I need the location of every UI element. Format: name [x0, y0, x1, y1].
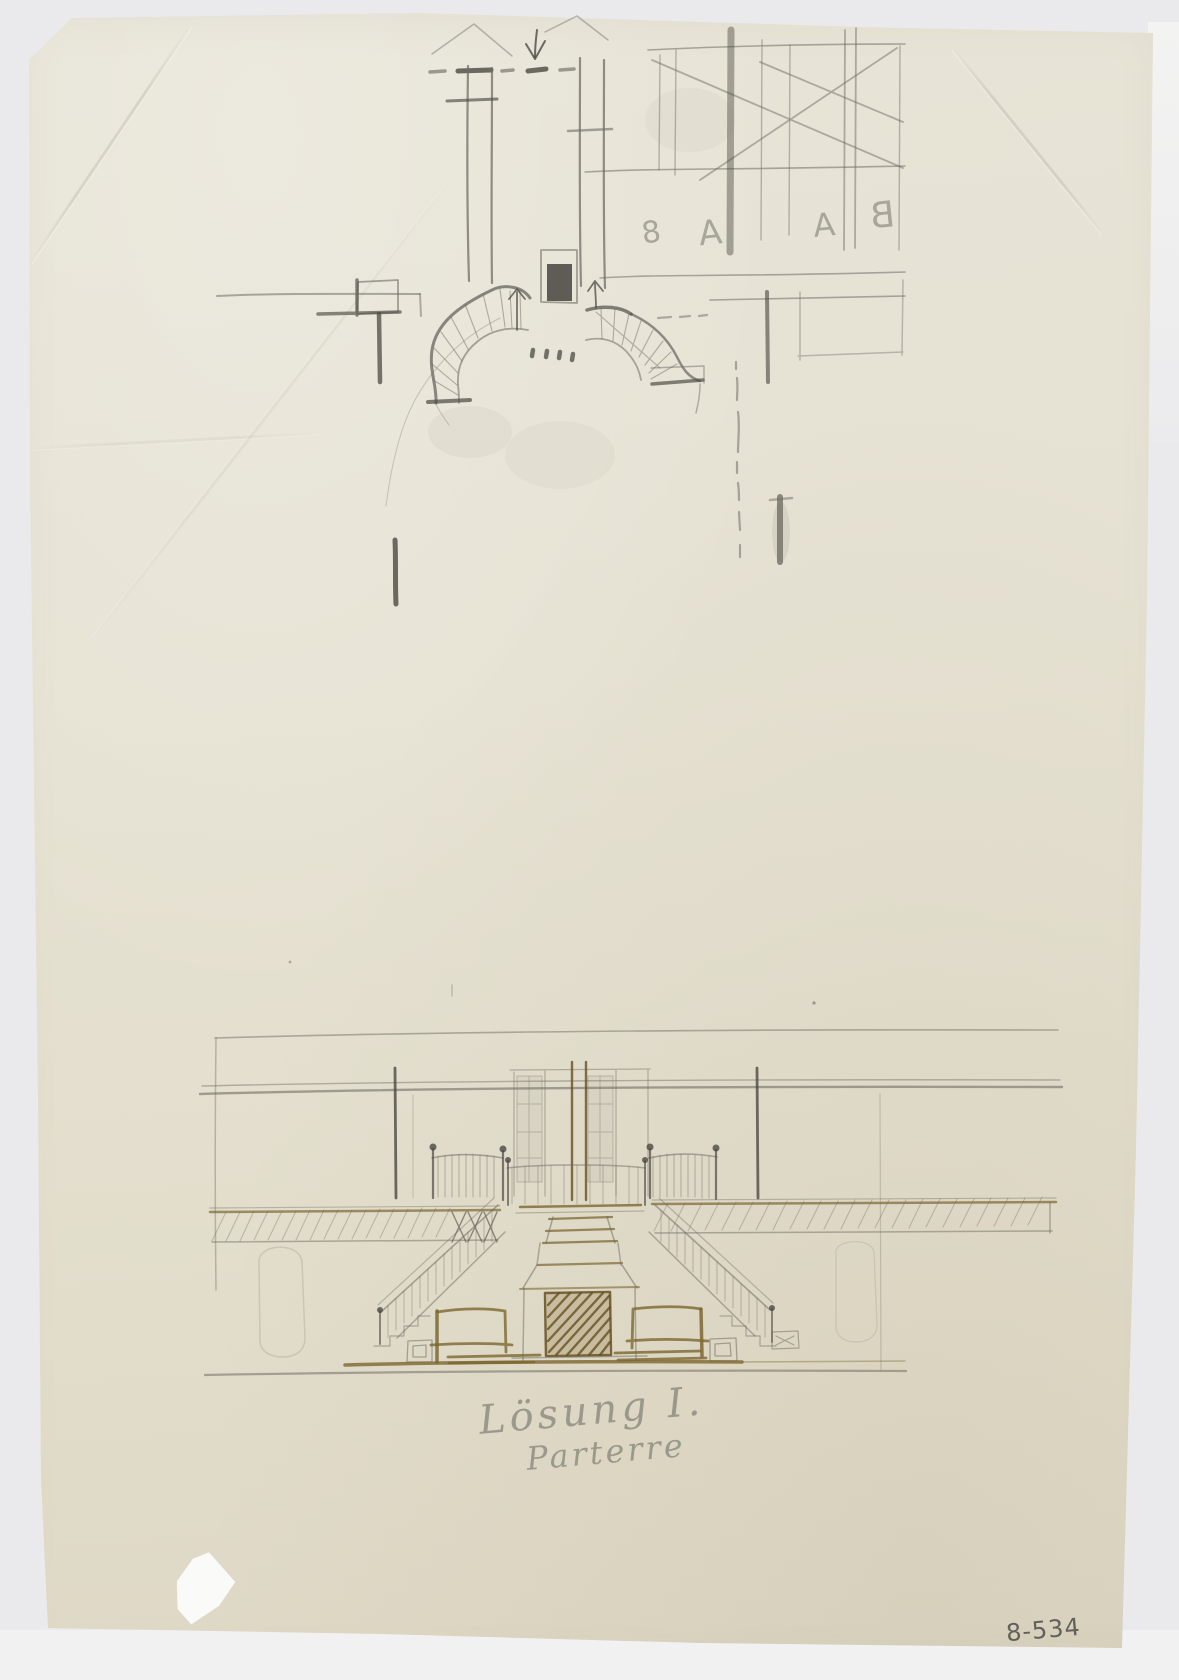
sketch-photograph: 8 A A B — [0, 0, 1179, 1680]
paper-crease — [952, 48, 1105, 236]
paper-crease — [92, 181, 451, 640]
background-mat-right — [1148, 22, 1179, 442]
paper-crease — [29, 26, 191, 265]
paper-crease — [28, 432, 320, 450]
